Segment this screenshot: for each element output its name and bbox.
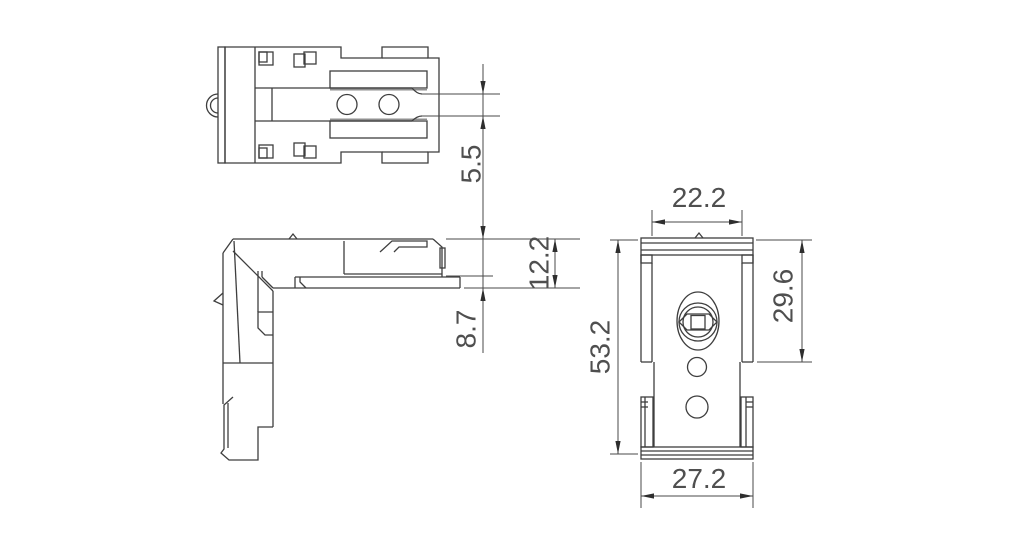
side-bump bbox=[214, 293, 223, 305]
arrowhead-down bbox=[480, 226, 485, 239]
left-end-strip bbox=[218, 47, 225, 163]
socket-outer-circle bbox=[679, 303, 717, 341]
snap-hook bbox=[380, 241, 427, 252]
right-rail bbox=[741, 397, 753, 447]
dim-base-width: 27.2 bbox=[641, 462, 753, 508]
dimension-text: 12.2 bbox=[523, 236, 554, 291]
left-rail bbox=[641, 397, 653, 447]
arrowhead-right bbox=[740, 493, 753, 498]
inner-corner-diagonal bbox=[233, 251, 273, 291]
contact-hole bbox=[337, 95, 357, 115]
flange-clip-barb bbox=[300, 277, 306, 288]
top-nib bbox=[289, 234, 297, 239]
hole-circle bbox=[686, 396, 708, 418]
clip-block-detail bbox=[259, 148, 267, 158]
arrowhead-up bbox=[480, 116, 485, 129]
three-view-drawing: 5.5 8.7 12.2 22.2 27.2 53. bbox=[0, 0, 1020, 560]
contact-hole bbox=[379, 95, 399, 115]
side-view bbox=[214, 234, 460, 460]
dim-upper-section-height: 29.6 bbox=[756, 240, 812, 362]
front-view bbox=[641, 233, 753, 459]
taper-line bbox=[234, 241, 240, 363]
clip-block-detail bbox=[259, 52, 267, 62]
clip-window bbox=[258, 312, 273, 335]
socket-inner-circle bbox=[683, 307, 713, 337]
clip-block bbox=[259, 145, 273, 158]
dim-body-width: 22.2 bbox=[652, 182, 742, 236]
corner-chamfer bbox=[223, 239, 233, 253]
top-nib bbox=[695, 233, 703, 238]
clip-block bbox=[304, 52, 316, 64]
arrowhead-up bbox=[480, 288, 485, 301]
screw-socket bbox=[677, 292, 719, 350]
corner-tab bbox=[641, 255, 652, 263]
arrowhead-left bbox=[652, 219, 665, 224]
dim-arm-overall-thickness: 12.2 bbox=[523, 236, 557, 291]
bottom-band bbox=[641, 447, 753, 459]
arrowhead-down bbox=[615, 441, 620, 454]
arrowhead-up bbox=[799, 240, 804, 253]
square-drive bbox=[691, 316, 705, 330]
top-view-outline bbox=[225, 47, 439, 163]
arrowhead-left bbox=[641, 493, 654, 498]
lower-slot bbox=[330, 121, 427, 138]
dimension-text: 53.2 bbox=[584, 320, 615, 375]
technical-drawing-canvas: 5.5 8.7 12.2 22.2 27.2 53. bbox=[0, 0, 1020, 560]
upper-slot bbox=[330, 71, 427, 88]
clip-block bbox=[304, 146, 316, 158]
dimension-text: 27.2 bbox=[672, 463, 727, 494]
arrowhead-down bbox=[480, 81, 485, 94]
arrowhead-up bbox=[615, 240, 620, 253]
hole-circle bbox=[688, 358, 707, 377]
dimension-text: 5.5 bbox=[455, 145, 486, 184]
dimension-text: 8.7 bbox=[450, 310, 481, 349]
bottom-hook bbox=[221, 397, 273, 460]
arrowhead-right bbox=[729, 219, 742, 224]
latch-bump-outer-arc bbox=[207, 94, 219, 117]
dimension-text: 29.6 bbox=[767, 269, 798, 324]
latch-bump-inner-arc bbox=[211, 98, 219, 113]
hex-socket bbox=[679, 314, 717, 330]
dim-overall-height: 53.2 bbox=[584, 240, 638, 454]
top-band bbox=[641, 238, 753, 255]
corner-tab bbox=[742, 255, 753, 263]
dim-arm-lower-offset: 8.7 bbox=[446, 226, 580, 348]
dimension-text: 22.2 bbox=[672, 182, 727, 213]
arrowhead-down bbox=[799, 349, 804, 362]
clip-block bbox=[259, 52, 273, 65]
